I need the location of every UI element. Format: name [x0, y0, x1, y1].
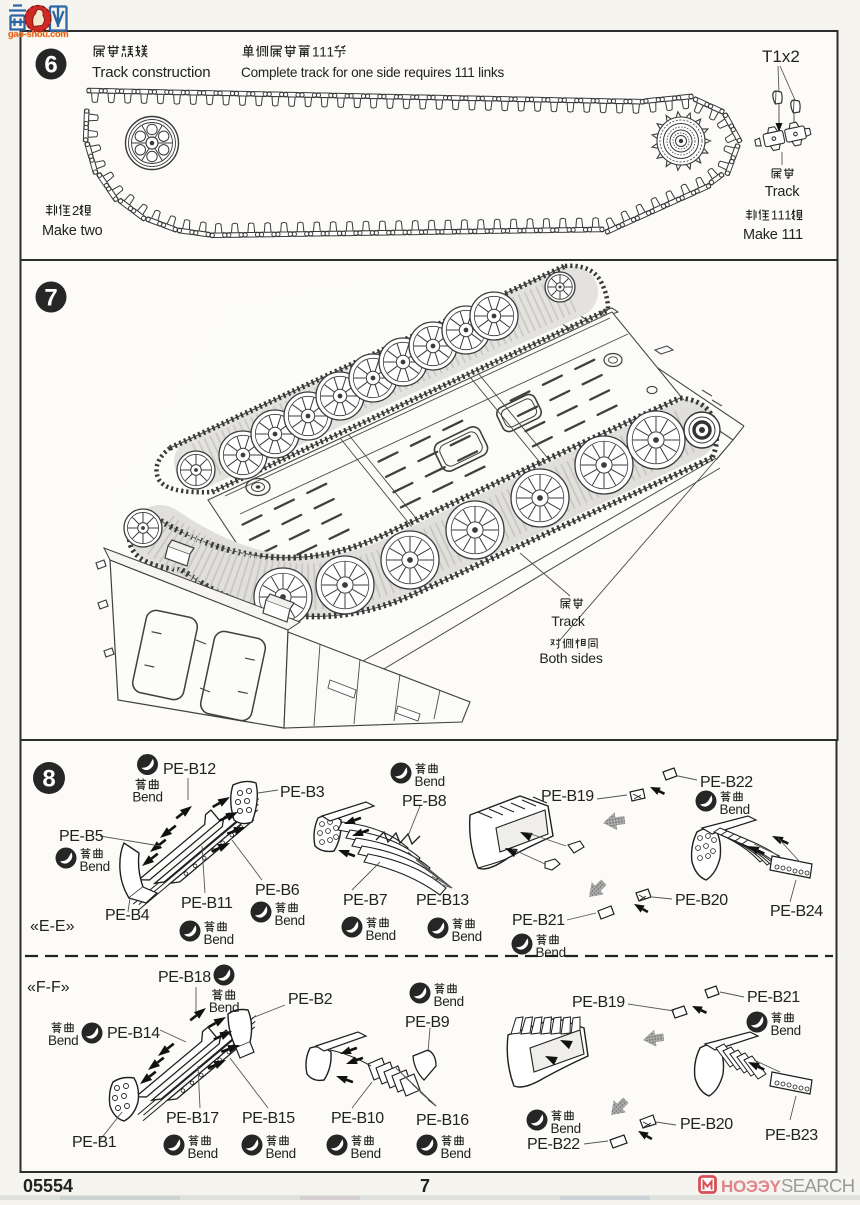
svg-text:PE-B8: PE-B8	[402, 793, 447, 810]
svg-text:Bend: Bend	[366, 928, 396, 943]
svg-text:Bend: Bend	[275, 913, 305, 928]
svg-text:Bend: Bend	[48, 1033, 78, 1048]
svg-text:PE-B4: PE-B4	[105, 907, 150, 924]
svg-text:Bend: Bend	[536, 945, 566, 960]
svg-text:05554: 05554	[23, 1176, 73, 1196]
svg-text:PE-B3: PE-B3	[280, 784, 325, 801]
svg-text:T1x2: T1x2	[762, 47, 800, 66]
svg-text:PE-B21: PE-B21	[512, 912, 565, 929]
svg-text:PE-B21: PE-B21	[747, 989, 800, 1006]
svg-text:1: 1	[312, 45, 319, 60]
svg-text:Bend: Bend	[188, 1146, 218, 1161]
svg-text:Track: Track	[765, 184, 801, 200]
svg-text:PE-B12: PE-B12	[163, 761, 216, 778]
svg-text:PE-B18: PE-B18	[158, 969, 211, 986]
svg-text:8: 8	[42, 766, 55, 793]
svg-text:2: 2	[72, 203, 79, 218]
svg-text:7: 7	[44, 285, 57, 312]
svg-text:PE-B5: PE-B5	[59, 828, 104, 845]
svg-text:Bend: Bend	[80, 859, 110, 874]
svg-text:PE-B7: PE-B7	[343, 892, 388, 909]
svg-text:Both sides: Both sides	[539, 650, 603, 666]
svg-text:PE-B13: PE-B13	[416, 892, 469, 909]
svg-text:7: 7	[420, 1176, 430, 1196]
svg-text:1: 1	[784, 209, 791, 223]
svg-text:PE-B24: PE-B24	[770, 903, 823, 920]
svg-text:Bend: Bend	[132, 790, 162, 805]
svg-text:PE-B1: PE-B1	[72, 1134, 117, 1151]
svg-text:«F-F»: «F-F»	[27, 979, 70, 996]
svg-text:PE-B9: PE-B9	[405, 1014, 450, 1031]
svg-text:Bend: Bend	[720, 802, 750, 817]
svg-text:1: 1	[319, 45, 326, 60]
svg-text:PE-B17: PE-B17	[166, 1110, 219, 1127]
svg-text:Bend: Bend	[771, 1023, 801, 1038]
svg-text:Bend: Bend	[209, 1000, 239, 1015]
svg-text:6: 6	[44, 52, 57, 79]
svg-text:«E-E»: «E-E»	[30, 918, 75, 935]
svg-text:PE-B20: PE-B20	[680, 1116, 733, 1133]
svg-text:Track: Track	[551, 613, 586, 629]
svg-text:PE-B20: PE-B20	[675, 892, 728, 909]
svg-text:Make two: Make two	[42, 223, 103, 239]
svg-text:Bend: Bend	[351, 1146, 381, 1161]
svg-text:PE-B14: PE-B14	[107, 1025, 160, 1042]
svg-text:Bend: Bend	[452, 929, 482, 944]
svg-text:PE-B19: PE-B19	[541, 788, 594, 805]
svg-text:PE-B22: PE-B22	[700, 774, 753, 791]
svg-text:HOЭЭY: HOЭЭY	[721, 1177, 781, 1196]
svg-text:Track construction: Track construction	[92, 64, 210, 81]
svg-text:Make 111: Make 111	[743, 227, 803, 243]
svg-text:Bend: Bend	[266, 1146, 296, 1161]
svg-text:PE-B22: PE-B22	[527, 1136, 580, 1153]
svg-text:1: 1	[327, 45, 334, 60]
svg-text:Bend: Bend	[434, 994, 464, 1009]
svg-text:Bend: Bend	[551, 1121, 581, 1136]
svg-text:PE-B11: PE-B11	[181, 895, 233, 912]
svg-text:PE-B10: PE-B10	[331, 1110, 384, 1127]
svg-text:Complete track for one side re: Complete track for one side requires 111…	[241, 65, 504, 80]
svg-text:PE-B15: PE-B15	[242, 1110, 295, 1127]
svg-text:SEARCH: SEARCH	[781, 1175, 855, 1196]
svg-text:PE-B6: PE-B6	[255, 882, 300, 899]
svg-text:PE-B19: PE-B19	[572, 994, 625, 1011]
svg-text:Bend: Bend	[415, 774, 445, 789]
svg-text:Bend: Bend	[441, 1146, 471, 1161]
svg-text:PE-B16: PE-B16	[416, 1112, 469, 1129]
svg-text:gao-shou.com: gao-shou.com	[8, 29, 68, 39]
svg-text:PE-B23: PE-B23	[765, 1127, 818, 1144]
svg-text:Bend: Bend	[204, 932, 234, 947]
svg-text:PE-B2: PE-B2	[288, 991, 333, 1008]
